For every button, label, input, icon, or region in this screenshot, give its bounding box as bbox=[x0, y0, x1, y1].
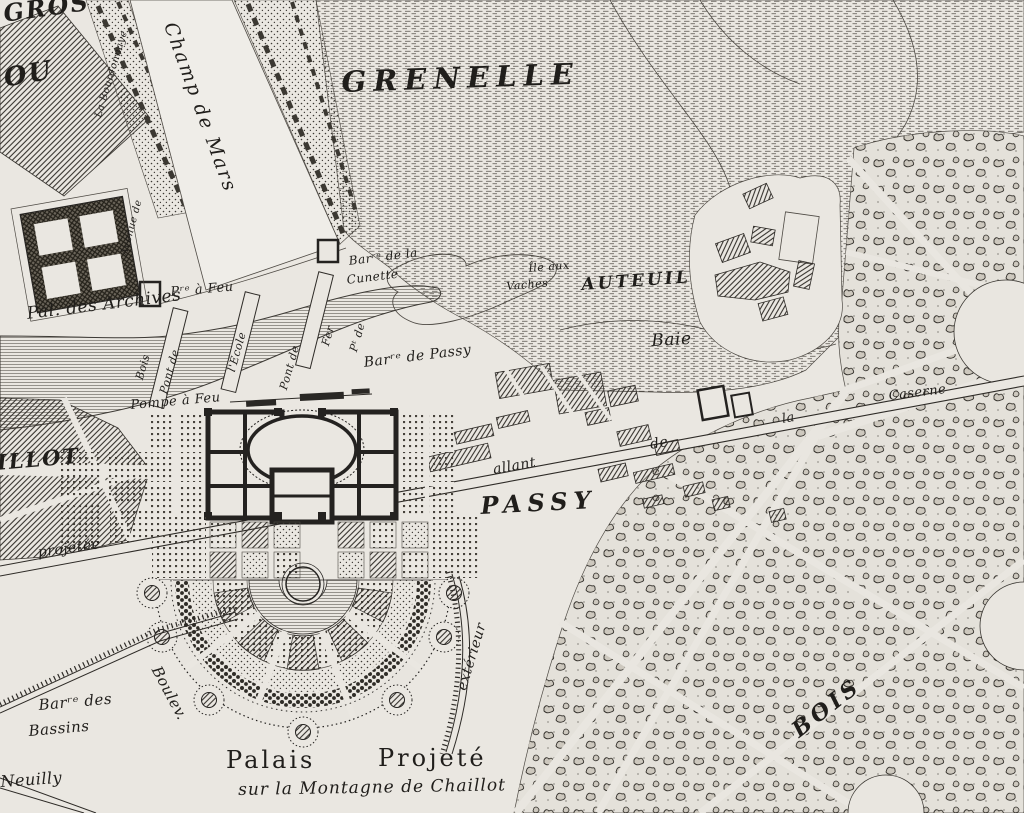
label-gros-caillou-2: OU bbox=[2, 57, 55, 91]
auteuil-village bbox=[689, 175, 842, 362]
label-passy: PASSY bbox=[480, 488, 597, 518]
barrier-building bbox=[698, 386, 729, 420]
label-ile-aux-vaches-line1: Île aux bbox=[528, 259, 570, 274]
label-chaillot: ILLOT bbox=[0, 445, 81, 473]
label-baie: Baie bbox=[651, 331, 692, 350]
label-sur-la-montagne: sur la Montagne de Chaillot bbox=[238, 777, 506, 799]
label-neuilly: Neuilly bbox=[0, 770, 63, 790]
gate-pavilion bbox=[318, 240, 338, 262]
label-projete: Projeté bbox=[378, 746, 487, 770]
barrier-building bbox=[731, 393, 753, 418]
historic-map-view: GROS OU Champ de Mars GRENELLE Avenue de… bbox=[0, 0, 1024, 813]
label-la: la bbox=[781, 411, 796, 426]
label-grenelle: GRENELLE bbox=[341, 60, 580, 97]
label-de: de bbox=[649, 435, 669, 452]
label-palais: Palais bbox=[226, 748, 315, 772]
label-ile-aux-vaches-line2: Vaches bbox=[506, 277, 549, 292]
